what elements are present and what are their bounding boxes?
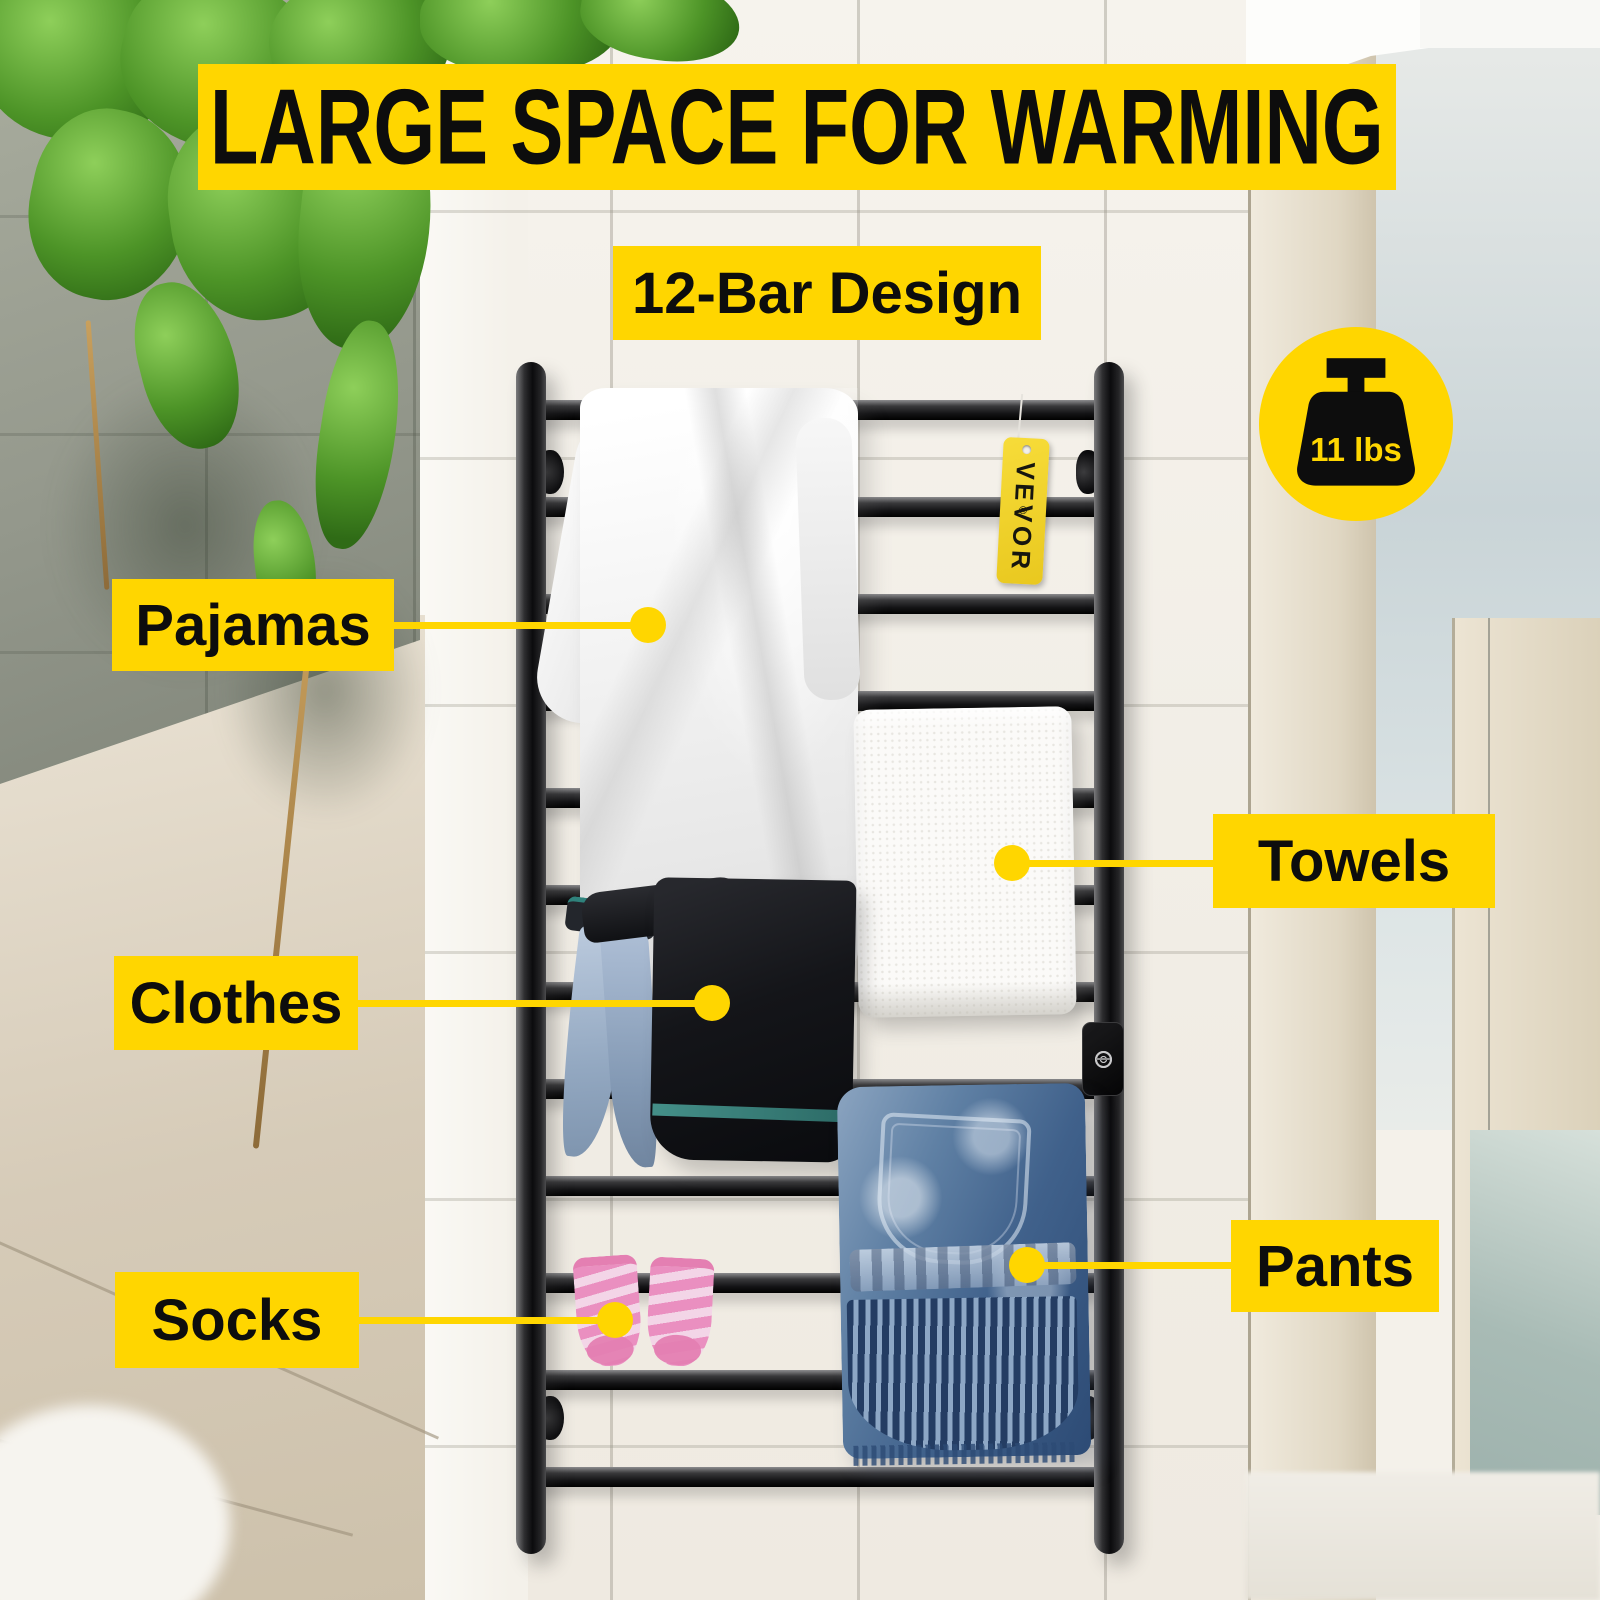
callout-label-clothes: Clothes xyxy=(114,956,358,1050)
weight-icon xyxy=(1286,354,1426,494)
callout-text: Pajamas xyxy=(135,592,370,659)
callout-dot-socks xyxy=(597,1302,633,1338)
brand-tag-label: VEVOR xyxy=(1004,462,1041,575)
weight-value: 11 lbs xyxy=(1259,431,1453,469)
headline-banner: LARGE SPACE FOR WARMING xyxy=(198,64,1396,190)
stone-pillar xyxy=(1248,0,1376,1600)
callout-dot-towels xyxy=(994,845,1030,881)
rack-bar xyxy=(530,1467,1108,1487)
jeans-gathered-cuff xyxy=(847,1296,1080,1452)
registered-mark: ® xyxy=(1017,505,1030,518)
callout-label-pants: Pants xyxy=(1231,1220,1439,1312)
callout-line-clothes xyxy=(358,1000,712,1007)
callout-text: Clothes xyxy=(130,970,343,1037)
callout-text: Socks xyxy=(152,1287,323,1354)
callout-line-pants xyxy=(1027,1262,1231,1269)
pajama-shirt-cuff xyxy=(795,417,861,701)
callout-dot-pajamas xyxy=(630,607,666,643)
glass-pane xyxy=(1470,1130,1600,1515)
design-badge: 12-Bar Design xyxy=(613,246,1041,340)
callout-line-towels xyxy=(1012,860,1213,867)
rack-left-rail xyxy=(516,362,546,1554)
control-panel[interactable] xyxy=(1082,1022,1124,1096)
tile-grout-line xyxy=(412,210,1255,213)
callout-text: Pants xyxy=(1256,1233,1414,1300)
callout-line-socks xyxy=(359,1317,615,1324)
blurred-counter xyxy=(1245,1472,1600,1600)
product-infographic: VEVOR ® LARGE SPACE FOR WARMING 12-Bar D… xyxy=(0,0,1600,1600)
headline-text: LARGE SPACE FOR WARMING xyxy=(210,65,1384,188)
weight-badge: 11 lbs xyxy=(1259,327,1453,521)
rack-right-rail xyxy=(1094,362,1124,1554)
callout-label-socks: Socks xyxy=(115,1272,359,1368)
callout-label-towels: Towels xyxy=(1213,814,1495,908)
callout-line-pajamas xyxy=(394,622,648,629)
callout-dot-clothes xyxy=(694,985,730,1021)
design-badge-text: 12-Bar Design xyxy=(632,260,1022,327)
ceiling-beam xyxy=(1420,0,1600,48)
callout-text: Towels xyxy=(1258,828,1450,895)
brand-tag: VEVOR ® xyxy=(996,437,1050,585)
tag-hole xyxy=(1021,445,1030,454)
black-clothes xyxy=(650,877,857,1162)
callout-dot-pants xyxy=(1009,1247,1045,1283)
panel-indicator xyxy=(1096,1058,1110,1060)
callout-label-pajamas: Pajamas xyxy=(112,579,394,671)
